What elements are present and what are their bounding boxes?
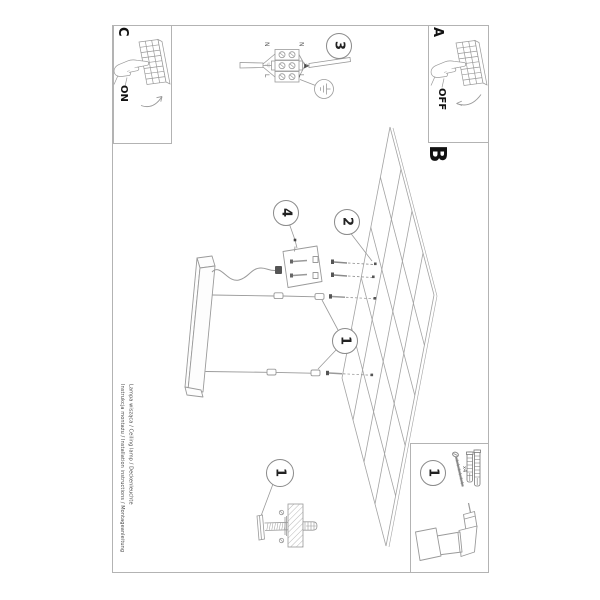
- step-2-callout: 2: [334, 209, 360, 235]
- parts-1-callout: 1: [420, 460, 446, 486]
- on-arrow-icon: [141, 97, 162, 107]
- step-1-callout: 1: [332, 328, 358, 354]
- canopy-screws-icon: [331, 260, 377, 279]
- hand-icon: [114, 60, 149, 77]
- lamp-bar-icon: [185, 256, 215, 397]
- wire-label-n-left: N: [263, 42, 269, 47]
- wire-label-l-left: L: [263, 74, 269, 77]
- section-a-label: A: [430, 27, 445, 37]
- off-label: OFF: [436, 88, 447, 110]
- step-3-callout: 3: [326, 33, 352, 59]
- detail-1-callout: 1: [266, 459, 294, 487]
- footer-text: Instrukcja montażu / Installation instru…: [117, 384, 135, 552]
- off-arrow-icon: [457, 95, 482, 106]
- step-4-callout: 4: [273, 200, 299, 226]
- section-c-label: C: [115, 27, 130, 37]
- parts-quantity-label: x4: [461, 466, 467, 472]
- drill-icon: [416, 503, 478, 561]
- canopy-icon: [283, 246, 322, 288]
- anchor-detail-icon: [257, 504, 317, 547]
- manual-page: C A B ON OFF N N L L 3 4 2 1 1 1 x4 Inst…: [0, 0, 600, 600]
- wall-switch-icon: [114, 40, 170, 87]
- line-art: [0, 0, 600, 600]
- wire-label-l-right: L: [298, 74, 304, 77]
- footer-line-2: Lampa wisząca / Ceiling lamp / Deckenleu…: [126, 384, 135, 552]
- footer-line-1: Instrukcja montażu / Installation instru…: [117, 384, 126, 552]
- wire-label-n-right: N: [298, 42, 304, 47]
- on-label: ON: [118, 85, 129, 102]
- ground-symbol-icon: [315, 80, 334, 99]
- power-cord-icon: [212, 266, 282, 280]
- wall-plug-icons: [467, 450, 481, 486]
- section-b-label: B: [424, 145, 450, 163]
